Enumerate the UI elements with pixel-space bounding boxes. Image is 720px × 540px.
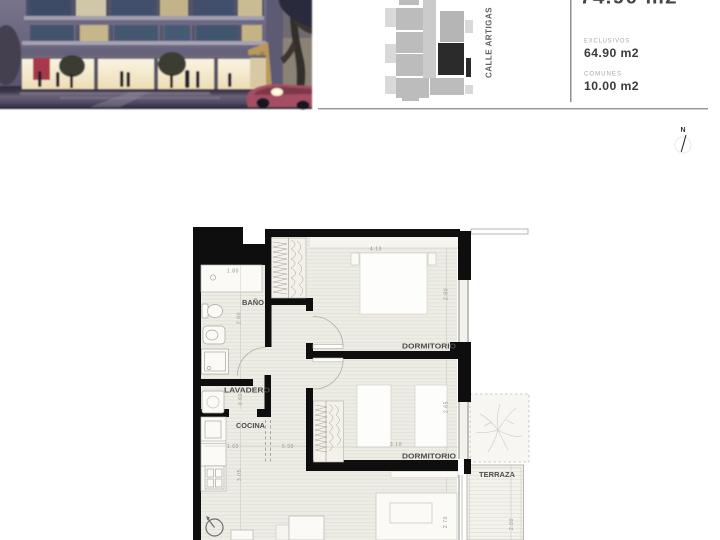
svg-text:1.80: 1.80 — [227, 269, 239, 275]
svg-text:DORMITORIO: DORMITORIO — [402, 342, 456, 351]
svg-text:64.90 m2: 64.90 m2 — [584, 48, 639, 60]
svg-text:0.60: 0.60 — [238, 393, 244, 405]
svg-text:TERRAZA: TERRAZA — [479, 472, 515, 479]
svg-text:4.10: 4.10 — [370, 247, 382, 253]
svg-text:COMUNES: COMUNES — [584, 71, 622, 78]
svg-text:10.00 m2: 10.00 m2 — [584, 81, 639, 93]
svg-text:2.80: 2.80 — [237, 312, 243, 324]
svg-text:BAÑO: BAÑO — [242, 298, 264, 307]
svg-text:2.80: 2.80 — [444, 288, 450, 300]
svg-text:74.90 m2: 74.90 m2 — [580, 0, 678, 8]
svg-text:DORMITORIO: DORMITORIO — [402, 452, 456, 461]
svg-text:N: N — [680, 127, 685, 134]
svg-text:2.80: 2.80 — [509, 518, 515, 530]
svg-text:1.60: 1.60 — [227, 444, 239, 450]
svg-text:LAVADERO: LAVADERO — [224, 386, 270, 395]
svg-text:2.70: 2.70 — [443, 516, 449, 528]
svg-text:0.90: 0.90 — [282, 444, 294, 450]
svg-text:EXCLUSIVOS: EXCLUSIVOS — [584, 38, 630, 45]
svg-text:2.65: 2.65 — [444, 401, 450, 413]
svg-text:3.10: 3.10 — [390, 442, 402, 448]
svg-text:3.05: 3.05 — [237, 469, 243, 481]
svg-text:CALLE ARTIGAS: CALLE ARTIGAS — [484, 7, 494, 78]
